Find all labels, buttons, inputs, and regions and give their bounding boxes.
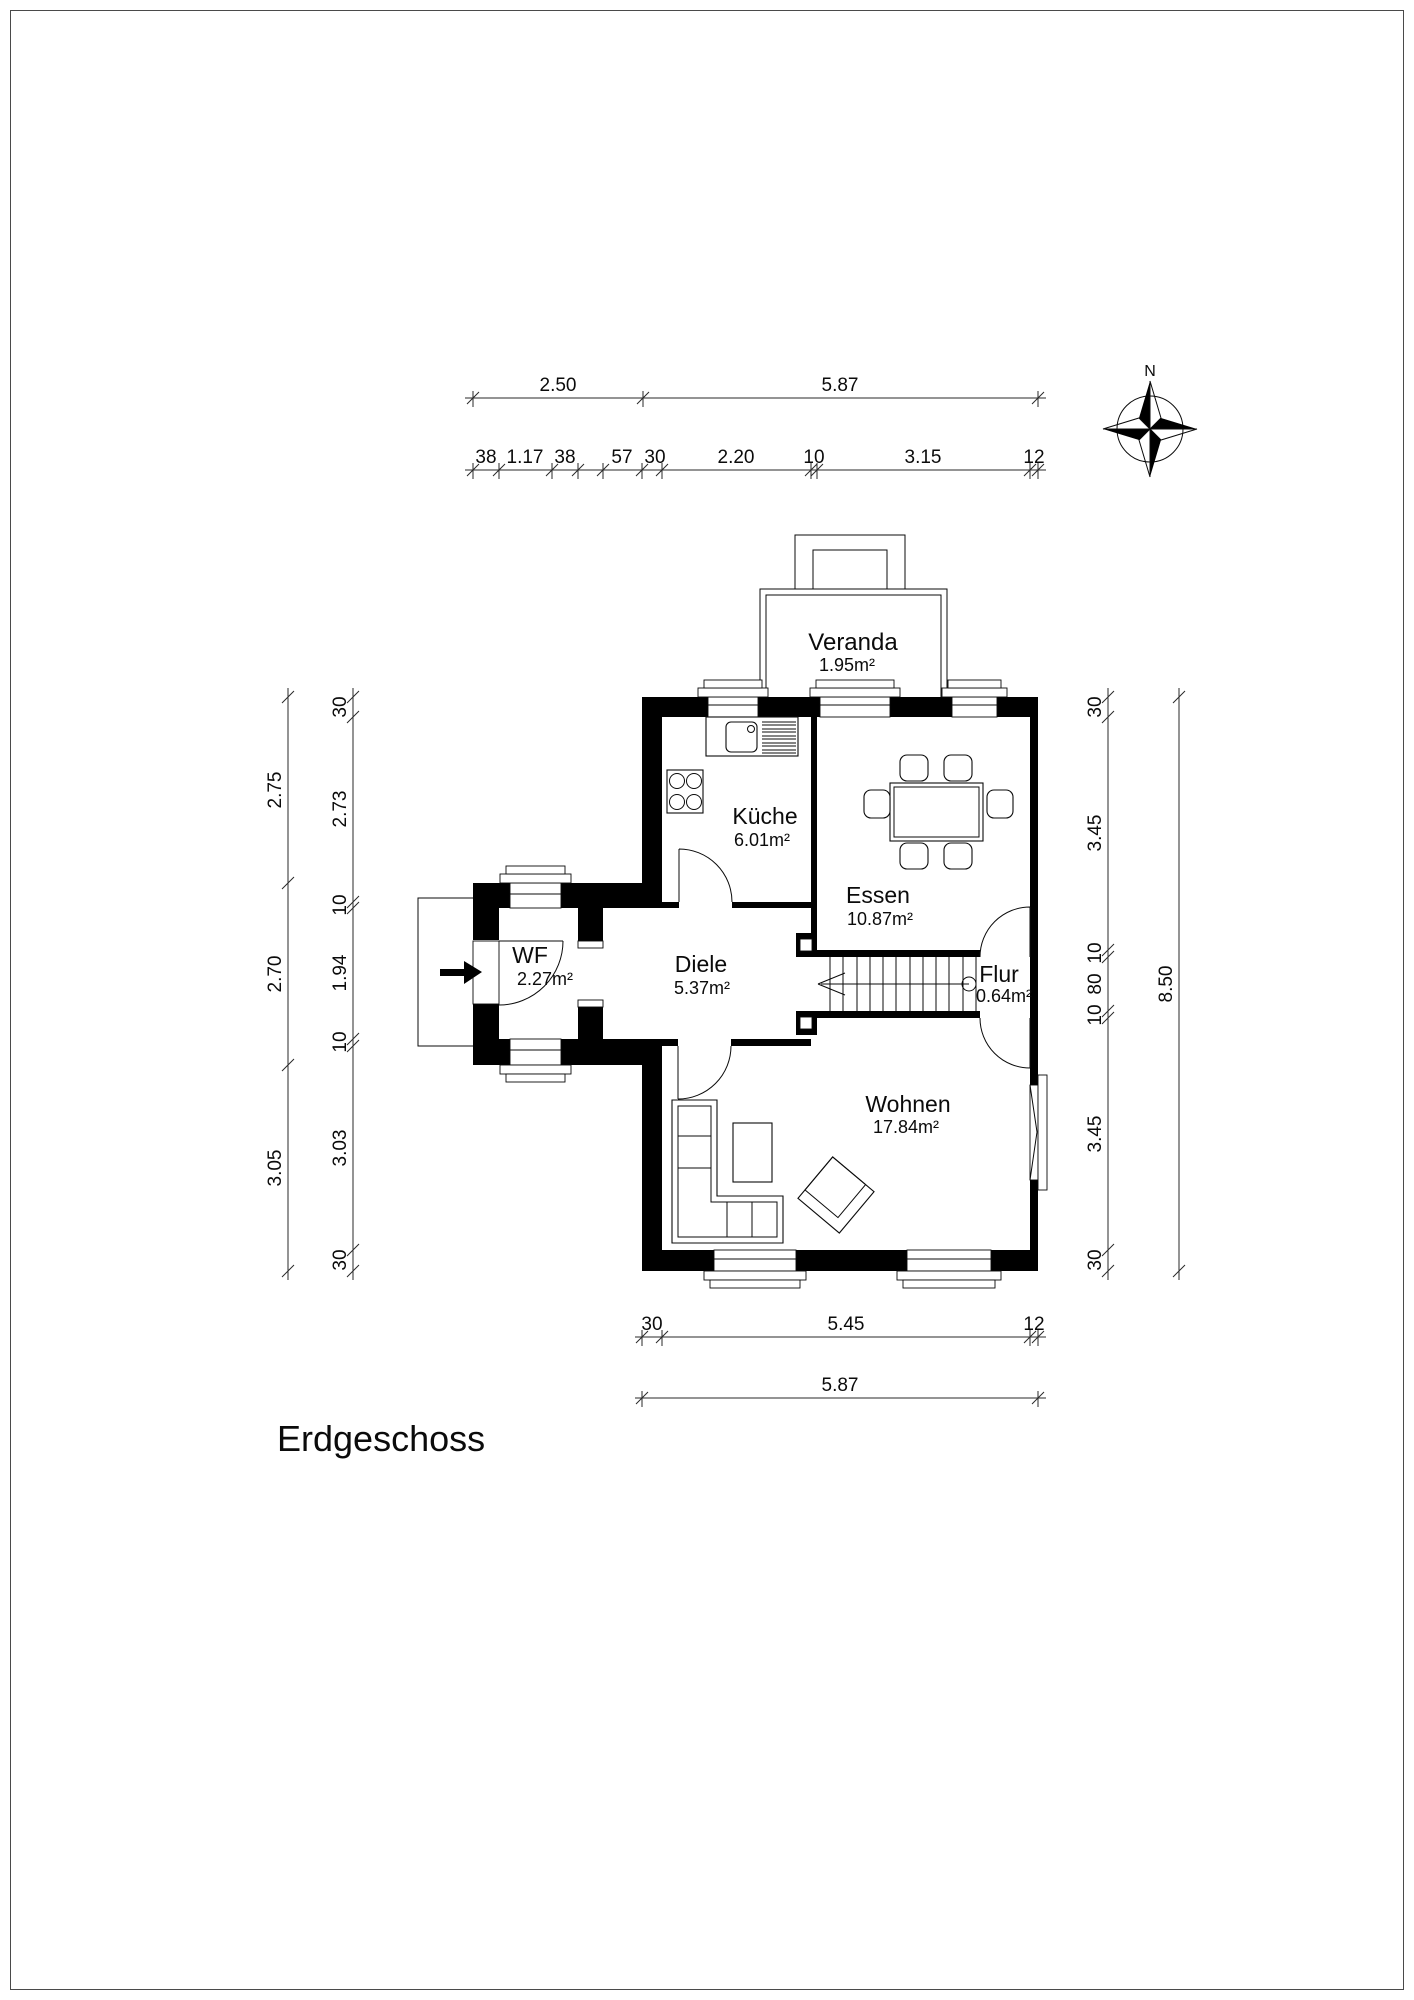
window-essen-north-2	[942, 680, 1007, 717]
room-name: Wohnen	[865, 1091, 950, 1117]
chair	[944, 843, 972, 869]
dimensions-right: 30 3.45 10 80 10 3.45 30 8.50	[1085, 688, 1185, 1280]
dim-label: 2.20	[718, 447, 755, 468]
window-kueche-north	[698, 680, 768, 717]
door-diele-wohnen	[678, 1046, 731, 1099]
door-jamb	[578, 941, 603, 948]
dim-label: 5.87	[822, 375, 859, 396]
dim-label: 38	[554, 447, 575, 468]
room-area: 17.84m²	[873, 1117, 939, 1137]
chair	[864, 790, 890, 818]
veranda-steps-inner	[813, 550, 887, 589]
room-name: Essen	[846, 882, 910, 908]
dim-label: 1.17	[507, 447, 544, 468]
dim-label: 5.45	[828, 1314, 865, 1335]
chair	[900, 843, 928, 869]
dim-label: 2.75	[265, 772, 286, 809]
dim-label: 3.15	[905, 447, 942, 468]
room-area: 6.01m²	[734, 830, 790, 850]
dim-label: 30	[1085, 1249, 1106, 1270]
room-name: WF	[512, 942, 548, 968]
dim-label: 3.45	[1085, 1116, 1106, 1153]
dim-label: 30	[641, 1314, 662, 1335]
room-area: 2.27m²	[517, 969, 573, 989]
floor-plan-sheet: 2.50 5.87 38 1.17 38 57 30 2.20 10 3.15 …	[0, 0, 1414, 2000]
door-essen-flur	[980, 907, 1030, 957]
window-wohnen-south-2	[897, 1250, 1001, 1288]
dim-label: 5.87	[822, 1375, 859, 1396]
window-wf-north	[500, 866, 571, 908]
dim-label: 8.50	[1156, 966, 1177, 1003]
stove	[667, 770, 703, 813]
compass-point	[1150, 429, 1161, 477]
dim-label: 30	[330, 1249, 351, 1270]
room-name: Veranda	[808, 629, 898, 656]
compass-icon: N	[1103, 363, 1197, 477]
dim-label: 2.70	[265, 956, 286, 993]
dimensions-left: 2.75 2.70 3.05 30 2.73 10 1.94 10 3.03 3…	[265, 688, 359, 1280]
window-wohnen-east	[1030, 1075, 1047, 1190]
compass-north-label: N	[1144, 363, 1156, 380]
dim-label: 10	[330, 894, 351, 915]
chair	[944, 755, 972, 781]
door-jamb	[578, 1000, 603, 1007]
dimensions-bottom: 30 5.45 12 5.87	[635, 1314, 1046, 1407]
window-wohnen-south-1	[704, 1250, 806, 1288]
compass-point	[1150, 418, 1197, 429]
dim-label: 10	[330, 1031, 351, 1052]
dim-label: 12	[1023, 1314, 1044, 1335]
compass-point	[1103, 429, 1150, 440]
dining-set	[864, 755, 1013, 869]
dim-label: 2.50	[540, 375, 577, 396]
room-area: 1.95m²	[819, 655, 875, 675]
coffee-table	[733, 1123, 772, 1182]
room-name: Flur	[979, 961, 1019, 987]
room-area: 10.87m²	[847, 909, 913, 929]
dim-label: 10	[803, 447, 824, 468]
compass-point	[1139, 381, 1150, 429]
dim-label: 3.03	[330, 1130, 351, 1167]
chair	[987, 790, 1013, 818]
veranda-steps-outer	[795, 535, 905, 589]
dim-label: 10	[1085, 942, 1106, 963]
wall-end-cap	[800, 939, 812, 951]
dim-label: 10	[1085, 1004, 1106, 1025]
dim-label: 30	[330, 696, 351, 717]
stair-walk-line	[818, 973, 969, 995]
room-area: 0.64m²	[976, 986, 1032, 1006]
chair	[900, 755, 928, 781]
living-room-furniture	[672, 1100, 874, 1243]
kitchen-fixtures	[667, 717, 798, 813]
wall-end-cap	[800, 1017, 812, 1029]
door-flur-wohnen	[980, 1018, 1030, 1068]
dim-label: 30	[644, 447, 665, 468]
dim-label: 80	[1085, 973, 1106, 994]
window-essen-north-1	[810, 680, 900, 717]
dim-label: 38	[475, 447, 496, 468]
door-diele-kueche	[679, 849, 732, 902]
dim-label: 3.05	[265, 1150, 286, 1187]
dim-label: 3.45	[1085, 815, 1106, 852]
dining-table	[890, 783, 983, 841]
armchair	[798, 1157, 874, 1233]
dim-label: 30	[1085, 696, 1106, 717]
floor-plan-drawing: 2.50 5.87 38 1.17 38 57 30 2.20 10 3.15 …	[0, 0, 1414, 2000]
room-name: Küche	[732, 803, 797, 829]
room-area: 5.37m²	[674, 978, 730, 998]
window-wf-south	[500, 1039, 571, 1082]
dim-label: 57	[611, 447, 632, 468]
dim-label: 2.73	[330, 791, 351, 828]
dim-label: 12	[1023, 447, 1044, 468]
room-name: Diele	[675, 951, 727, 977]
dim-label: 1.94	[330, 954, 351, 991]
dimensions-top: 2.50 5.87 38 1.17 38 57 30 2.20 10 3.15 …	[465, 375, 1046, 479]
kitchen-sink	[726, 722, 757, 752]
staircase	[818, 957, 976, 1011]
sheet-title: Erdgeschoss	[277, 1418, 485, 1459]
